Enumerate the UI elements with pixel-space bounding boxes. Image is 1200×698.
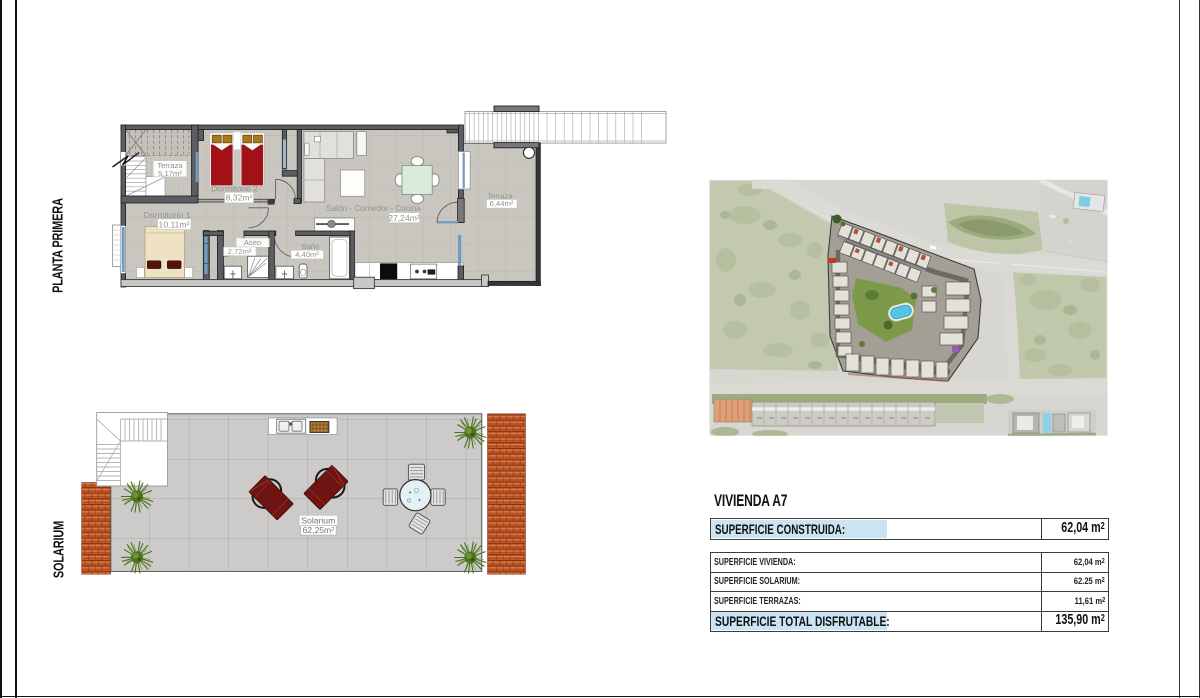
svg-text:2,72m²: 2,72m² [228,247,252,256]
svg-text:10,11m²: 10,11m² [159,219,190,229]
svg-text:6,44m²: 6,44m² [490,199,514,208]
svg-text:4,40m²: 4,40m² [295,250,319,259]
svg-text:Solarium: Solarium [301,515,335,525]
svg-text:27,24m²: 27,24m² [388,213,420,223]
svg-text:5,17m²: 5,17m² [158,169,182,178]
svg-text:8,32m²: 8,32m² [226,193,253,203]
svg-text:Aseo: Aseo [244,238,261,247]
svg-text:62,25m²: 62,25m² [303,525,335,535]
